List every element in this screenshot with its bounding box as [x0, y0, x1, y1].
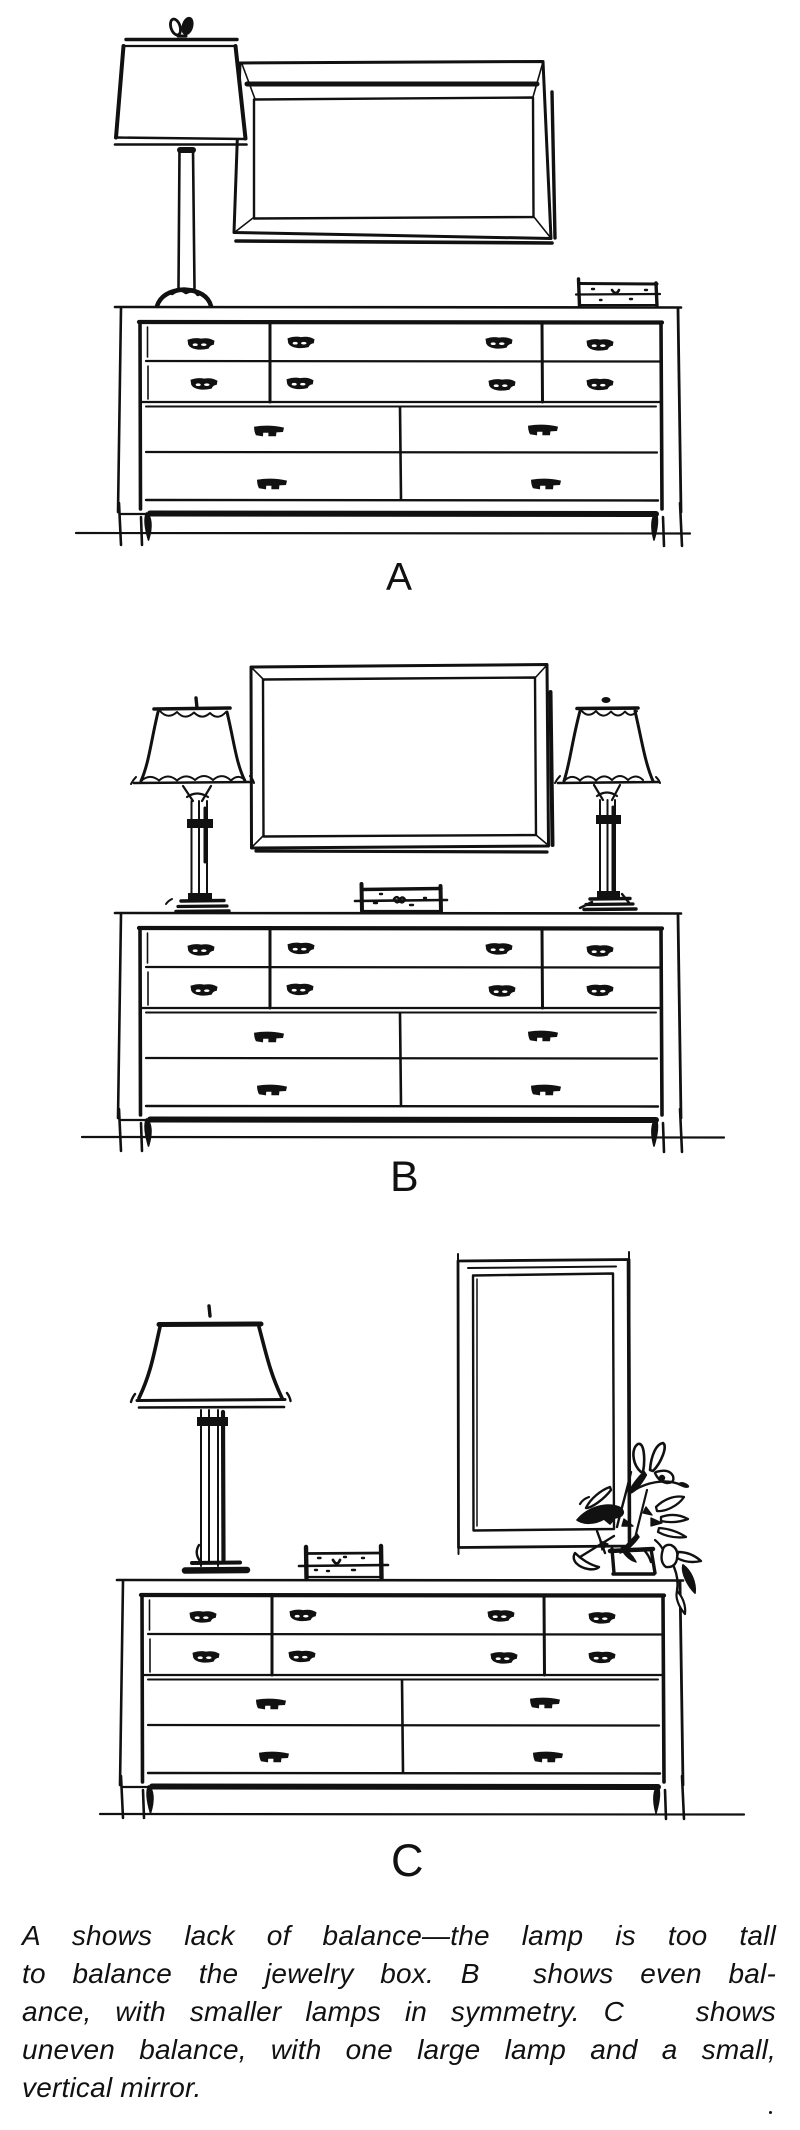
svg-text:C: C	[391, 1835, 424, 1886]
svg-text:A: A	[386, 556, 412, 599]
svg-text:B: B	[390, 1153, 419, 1201]
